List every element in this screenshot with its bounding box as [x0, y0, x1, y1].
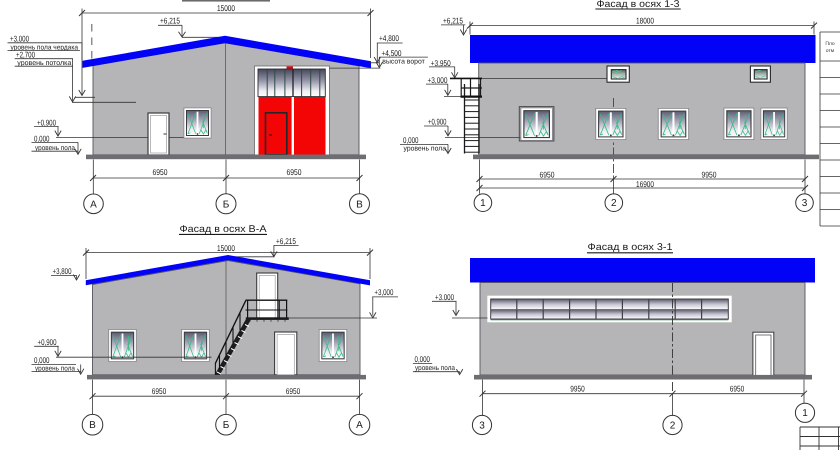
svg-text:0,000: 0,000 — [34, 133, 50, 143]
svg-text:уровень пола: уровень пола — [415, 365, 455, 372]
svg-text:В: В — [356, 199, 363, 210]
svg-text:+4,800: +4,800 — [379, 33, 399, 43]
svg-text:+0,900: +0,900 — [428, 116, 447, 126]
svg-text:Б: Б — [223, 420, 230, 431]
svg-text:+6,215: +6,215 — [276, 236, 296, 246]
svg-text:Б: Б — [223, 199, 230, 210]
svg-text:15000: 15000 — [217, 3, 235, 13]
svg-text:3: 3 — [479, 420, 485, 431]
svg-text:Фасад в осях 1-3: Фасад в осях 1-3 — [597, 0, 681, 10]
svg-text:+0,900: +0,900 — [38, 337, 57, 347]
svg-text:6950: 6950 — [152, 386, 167, 396]
svg-text:0,000: 0,000 — [415, 354, 431, 364]
svg-text:+6,215: +6,215 — [443, 15, 463, 25]
svg-text:0,000: 0,000 — [34, 355, 50, 365]
svg-text:6950: 6950 — [540, 169, 555, 179]
svg-text:Фасад в осях В-А: Фасад в осях В-А — [180, 224, 268, 235]
svg-text:9950: 9950 — [702, 169, 717, 179]
svg-text:А: А — [356, 420, 363, 431]
svg-text:А: А — [90, 199, 97, 210]
svg-text:6950: 6950 — [286, 386, 301, 396]
svg-text:В: В — [89, 420, 96, 431]
svg-text:+3,800: +3,800 — [53, 266, 72, 276]
svg-text:+2,700: +2,700 — [16, 49, 35, 59]
svg-text:9950: 9950 — [570, 384, 585, 394]
svg-text:1: 1 — [480, 198, 486, 209]
svg-text:+3,950: +3,950 — [431, 58, 451, 68]
svg-text:Пло: Пло — [825, 41, 835, 47]
svg-text:1: 1 — [802, 408, 808, 419]
svg-text:16900: 16900 — [636, 179, 654, 189]
svg-text:+3.000: +3.000 — [435, 292, 454, 302]
svg-text:+3,000: +3,000 — [374, 287, 393, 297]
svg-text:+0,900: +0,900 — [37, 117, 56, 127]
svg-text:Фасад в осях 3-1: Фасад в осях 3-1 — [588, 242, 673, 253]
svg-text:18000: 18000 — [636, 16, 654, 26]
svg-text:уровень пола: уровень пола — [404, 145, 447, 152]
svg-text:2: 2 — [670, 420, 676, 431]
svg-text:2: 2 — [611, 198, 617, 209]
svg-text:6950: 6950 — [730, 384, 745, 394]
svg-text:+4,500: +4,500 — [382, 48, 402, 58]
svg-text:15000: 15000 — [217, 243, 235, 253]
svg-text:3: 3 — [802, 198, 808, 209]
svg-text:+6,215: +6,215 — [160, 16, 180, 26]
svg-text:6950: 6950 — [287, 167, 302, 177]
svg-text:+3,000: +3,000 — [428, 75, 448, 85]
svg-text:0,000: 0,000 — [403, 135, 419, 145]
svg-text:отм: отм — [826, 48, 835, 54]
svg-text:высота ворот: высота ворот — [382, 59, 425, 66]
svg-text:+3,000: +3,000 — [10, 34, 29, 44]
svg-text:6950: 6950 — [153, 167, 168, 177]
